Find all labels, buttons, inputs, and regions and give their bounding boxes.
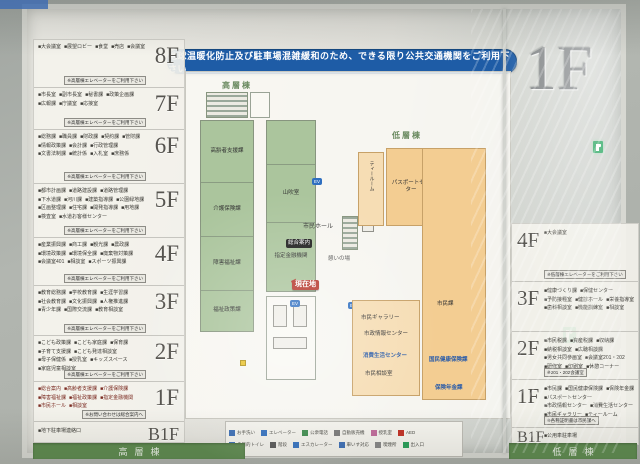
department-label: ■農政課 (111, 242, 129, 250)
floor-row-2f: 2F ■市民税課■資産税課■収納課■納税相談室■広聴相談課■男女共同参画室■会議… (512, 332, 638, 380)
department-label: ■開発指導課 (90, 205, 118, 213)
legend-row-1: お手洗いエレベーター公衆電話自動販売機授乳室AED (229, 430, 459, 436)
floor-number: 1F (155, 386, 179, 409)
legend-icon (371, 430, 377, 436)
floor-number: 2F (155, 340, 179, 363)
floor-row-4f: 4F ■大会議室 ※低層棟エレベーターをご利用下さい (512, 224, 638, 282)
department-label: ■市長室 (38, 92, 56, 100)
utility-room (250, 92, 270, 118)
department-label: ■保健センター (580, 288, 613, 296)
department-label: ■公用車駐車場 (544, 433, 577, 441)
lowrise-annex-block: 市民ギャラリー 市政情報センター 消費生活センター 市民相談室 (352, 300, 420, 396)
department-label: ■こども発達相談室 (74, 349, 117, 357)
department-label: ■機能訓練室 (575, 305, 603, 313)
floor-note: ※各種証明書は市民課へ (544, 416, 599, 425)
department-label: ■売店 (111, 44, 124, 52)
legend-icon (375, 442, 381, 448)
legend-label: 自動販売機 (342, 430, 365, 436)
floor-number: 8F (155, 44, 179, 67)
department-label: ■学校教育課 (69, 290, 97, 298)
department-label: ■道路建設課 (69, 188, 97, 196)
elevator-badge: EV (290, 300, 300, 307)
floor-note: ※高層棟エレベーターをご利用下さい (64, 324, 146, 333)
department-label: ■栄養指導室 (606, 297, 634, 305)
department-label: ■財政課 (80, 134, 98, 142)
department-label: ■広報課 (38, 101, 56, 109)
floor-note: ※高層棟エレベーターをご利用下さい (64, 226, 146, 235)
department-label: ■保育課 (110, 340, 128, 348)
floor-note: ※201・202会議室 (544, 368, 587, 377)
legend-item: 授乳室 (371, 430, 393, 436)
department-label: ■高齢者支援課 (64, 386, 97, 394)
legend-icon (398, 430, 404, 436)
department-label: ■人権推進課 (100, 299, 128, 307)
department-label: ■住宅課 (69, 205, 87, 213)
highrise-wing-bar: 高層棟 (33, 443, 245, 459)
department-label: ■国際交流課 (64, 307, 92, 315)
glass-reflection (0, 0, 48, 9)
department-label: ■総合案内 (38, 386, 61, 394)
floor-note: ※高層棟エレベーターをご利用下さい (64, 118, 146, 127)
department-label: ■建築指導課 (85, 197, 113, 205)
legend-label: 出入口 (411, 442, 425, 448)
highrise-floor-list: ■大会議室■展望ロビー■食堂■売店■会議室 8F ※高層棟エレベーターをご利用下… (33, 39, 185, 443)
current-location-badge: 現在地 (292, 280, 319, 290)
legend-item: 喫煙所 (375, 442, 397, 448)
department-label: ■福祉政策課 (69, 395, 97, 403)
floor-note: ※低層棟エレベーターをご利用下さい (544, 270, 626, 279)
department-label: ■市政情報センター (544, 403, 587, 411)
department-label: ■納税相談室 (544, 347, 572, 355)
department-label: ■相談室 (606, 305, 624, 313)
room-label: 福祉政策課 (213, 307, 241, 314)
department-label: ■こども政策課 (38, 340, 71, 348)
department-label: ■食堂 (95, 44, 108, 52)
department-label: ■こども家庭課 (74, 340, 107, 348)
department-label: ■統計係 (69, 151, 87, 159)
stairs-block (206, 92, 248, 118)
floor-number: 1F (517, 386, 539, 407)
department-label: ■パスポートセンター (544, 395, 592, 403)
floor-number: 2F (517, 338, 539, 359)
highrise-room-block-b: 山吹室 指定金融機関 (266, 120, 316, 292)
department-label: ■管財課 (122, 134, 140, 142)
department-label: ■職員課 (59, 134, 77, 142)
floor-note: ※高層棟エレベーターをご利用下さい (64, 76, 146, 85)
department-label: ■大会議室 (38, 44, 61, 52)
department-label: ■応接室 (80, 101, 98, 109)
room-label: 市民ギャラリー (361, 315, 400, 322)
department-label: ■下水道課 (38, 197, 61, 205)
floor-number: 4F (155, 242, 179, 265)
department-label: ■子育て支援課 (38, 349, 71, 357)
room-label: 山吹室 (283, 190, 300, 197)
legend-item: エスカレーター (293, 442, 333, 448)
department-label: ■会計課 (69, 143, 87, 151)
floor-number: B1F (148, 425, 179, 443)
department-label: ■河川課 (64, 197, 82, 205)
map-lowrise-title: 低層棟 (392, 130, 422, 141)
floor-number: 7F (155, 92, 179, 115)
tearoom: ティールーム (358, 152, 384, 226)
floor-row-4f: ■産業振興課■商工課■観光課■農政課■環境政策課■環境保全課■廃棄物対策課■会議… (34, 238, 184, 286)
department-label: ■スポーツ振興課 (88, 259, 126, 267)
lowrise-floor-list: 4F ■大会議室 ※低層棟エレベーターをご利用下さい 3F ■健康づくり課■保健… (511, 223, 639, 445)
lowrise-wing-bar: 低層棟 (509, 443, 637, 459)
emergency-exit-sign (593, 141, 603, 153)
department-label: ■大会議室 (544, 230, 567, 238)
rest-area-label: 憩いの場 (328, 256, 350, 263)
department-label: ■母子保健係 (38, 357, 66, 365)
department-label: ■保険年金課 (606, 386, 634, 394)
department-label: ■会議室401 (38, 259, 64, 267)
floor-row-3f: 3F ■健康づくり課■保健センター■予防接種室■健診ホール■栄養指導室■歯科相談… (512, 282, 638, 332)
department-label: ■生涯学習課 (100, 290, 128, 298)
floor-row-3f: ■教育総務課■学校教育課■生涯学習課■社会教育課■文化振興課■人権推進課■青少年… (34, 286, 184, 336)
department-label: ■広聴相談課 (575, 347, 603, 355)
floor-row-7f: ■市長室■副市長室■秘書課■政策企画課■広報課■庁議室■応接室 7F ※高層棟エ… (34, 88, 184, 130)
room-label: 国民健康保険課 (429, 357, 468, 364)
department-label: ■環境政策課 (38, 251, 66, 259)
department-label: ■庁議室 (59, 101, 77, 109)
information-badge: 総合案内 (286, 239, 312, 248)
floor-map-1f: 高層棟 低層棟 高齢者支援課 介護保険課 障害福祉課 福祉政策課 山吹室 指定金… (185, 71, 511, 419)
department-label: ■予防接種室 (544, 297, 572, 305)
legend-label: 授乳室 (379, 430, 393, 436)
floor-note: ※高層棟エレベーターをご利用下さい (64, 172, 146, 181)
legend-icon (302, 430, 308, 436)
legend-label: お手洗い (237, 430, 255, 436)
lowrise-main-block: 市民課 国民健康保険課 保険年金課 (422, 148, 486, 400)
department-label: ■収納課 (596, 338, 614, 346)
department-label: ■環境保全課 (69, 251, 97, 259)
department-label: ■休憩コーナー (586, 364, 619, 372)
department-label: ■介護保険課 (100, 386, 128, 394)
floor-row-b1f: ■地下駐車場連絡口 B1F (34, 422, 184, 444)
department-label: ■資産税課 (570, 338, 593, 346)
room-label: 高齢者支援課 (210, 148, 243, 155)
department-label: ■キッズスペース (90, 357, 127, 365)
department-label: ■公園緑地課 (116, 197, 144, 205)
department-label: ■総務課 (38, 134, 56, 142)
floor-number: 4F (517, 230, 539, 251)
department-label: ■行政管理課 (90, 143, 118, 151)
department-label: ■廃棄物対策課 (100, 251, 133, 259)
department-label: ■市民課 (544, 386, 562, 394)
legend-icon (334, 430, 340, 436)
legend-item: お手洗い (229, 430, 255, 436)
floor-row-2f: ■こども政策課■こども家庭課■保育課■子育て支援課■こども発達相談室■母子保健係… (34, 336, 184, 382)
room-label: 市政情報センター (359, 331, 413, 338)
etched-floor-number: 1F (525, 31, 593, 105)
department-label: ■消費生活センター (590, 403, 633, 411)
department-label: ■展望ロビー (64, 44, 92, 52)
legend-row-2: 多目的トイレ階段エスカレーター車いす対応喫煙所出入口 (229, 442, 459, 448)
department-label: ■契約課 (101, 134, 119, 142)
department-label: ■地下駐車場連絡口 (38, 428, 81, 436)
legend-item: 出入口 (403, 442, 425, 448)
department-label: ■健康づくり課 (544, 288, 577, 296)
legend-label: AED (406, 430, 415, 435)
glass-frame-divider (503, 9, 506, 453)
elevator-marker (240, 360, 246, 366)
department-label: ■情報政策課 (38, 143, 66, 151)
department-label: ■授乳室 (69, 357, 87, 365)
legend-icon (270, 442, 276, 448)
elevator-badge: EV (312, 178, 322, 185)
floor-number: 3F (517, 288, 539, 309)
counter-room (266, 296, 316, 380)
legend-item: 公衆電話 (302, 430, 328, 436)
floor-row-5f: ■都市計画課■道路建設課■道路管理課■下水道課■河川課■建築指導課■公園緑地課■… (34, 184, 184, 238)
floor-row-1f: 1F ■市民課■国民健康保険課■保険年金課■パスポートセンター■市政情報センター… (512, 380, 638, 428)
floor-row-1f: ■総合案内■高齢者支援課■介護保険課■障害福祉課■福祉政策課■指定金融機関■市民… (34, 382, 184, 422)
floor-number: 3F (155, 290, 179, 313)
department-label: ■青少年課 (38, 307, 61, 315)
legend-icon (293, 442, 299, 448)
map-highrise-title: 高層棟 (222, 80, 252, 91)
department-label: ■男女共同参画室 (544, 355, 582, 363)
department-label: ■文書法制課 (38, 151, 66, 159)
department-label: ■市民税課 (544, 338, 567, 346)
department-label: ■庶務係 (111, 151, 129, 159)
legend-label: 車いす対応 (347, 442, 370, 448)
department-label: ■歯科相談室 (544, 305, 572, 313)
department-label: ■入札室 (90, 151, 108, 159)
department-label: ■会議室201・202 (585, 355, 625, 363)
room-label: 介護保険課 (213, 206, 241, 213)
legend-item: エレベーター (261, 430, 296, 436)
floor-row-8f: ■大会議室■展望ロビー■食堂■売店■会議室 8F ※高層棟エレベーターをご利用下… (34, 40, 184, 88)
department-label: ■文化振興課 (69, 299, 97, 307)
department-label: ■用地課 (121, 205, 139, 213)
legend-item: 自動販売機 (334, 430, 365, 436)
legend-label: エスカレーター (301, 442, 333, 448)
department-label: ■国民健康保険課 (565, 386, 603, 394)
legend-label: 階段 (278, 442, 287, 448)
legend-item: 階段 (270, 442, 287, 448)
department-label: ■区画整理課 (38, 205, 66, 213)
floor-note: ※高層棟エレベーターをご利用下さい (64, 274, 146, 283)
legend-icon (339, 442, 345, 448)
room-label: ティールーム (368, 161, 375, 191)
stairs-block (342, 216, 358, 250)
legend-item: 車いす対応 (339, 442, 370, 448)
room-label: 消費生活センター (363, 353, 407, 360)
legend-label: 喫煙所 (383, 442, 397, 448)
legend-label: 公衆電話 (310, 430, 328, 436)
legend-item: AED (398, 430, 415, 436)
department-label: ■検査室 (38, 214, 56, 222)
room-label: 保険年金課 (435, 385, 463, 392)
floor-note: ※お問い合わせは総合案内へ (82, 410, 146, 419)
department-label: ■道路管理課 (100, 188, 128, 196)
hall-label: 市民ホール (286, 224, 350, 232)
department-label: ■障害福祉課 (38, 395, 66, 403)
room-label: 市民課 (437, 301, 454, 308)
legend-icon (403, 442, 409, 448)
legend-icon (261, 430, 267, 436)
department-label: ■副市長室 (59, 92, 82, 100)
department-label: ■教育総務課 (38, 290, 66, 298)
department-label: ■産業振興課 (38, 242, 66, 250)
department-label: ■教育相談室 (95, 307, 123, 315)
floor-number: 6F (155, 134, 179, 157)
floor-note: ※高層棟エレベーターをご利用下さい (64, 370, 146, 379)
highrise-room-block-a: 高齢者支援課 介護保険課 障害福祉課 福祉政策課 (200, 120, 254, 332)
legend-label: エレベーター (269, 430, 296, 436)
department-label: ■社会教育課 (38, 299, 66, 307)
legend-icon (229, 430, 235, 436)
department-label: ■市民ホール (38, 403, 66, 411)
map-legend: お手洗いエレベーター公衆電話自動販売機授乳室AED 多目的トイレ階段エスカレータ… (225, 421, 463, 457)
department-label: ■観光課 (90, 242, 108, 250)
floor-row-6f: ■総務課■職員課■財政課■契約課■管財課■情報政策課■会計課■行政管理課■文書法… (34, 130, 184, 184)
room-label: 市民相談室 (365, 371, 393, 378)
department-label: ■商工課 (69, 242, 87, 250)
department-label: ■政策企画課 (106, 92, 134, 100)
department-label: ■健診ホール (575, 297, 603, 305)
room-label: 指定金融機関 (274, 253, 307, 260)
directory-display-case: 地球温暖化防止及び駐車場混雑緩和のため、できる限り公共交通機関をご利用下さい ■… (22, 4, 626, 458)
department-label: ■水道お客様センター (59, 214, 107, 222)
department-label: ■都市計画課 (38, 188, 66, 196)
department-label: ■相談室 (67, 259, 85, 267)
department-label: ■指定金融機関 (100, 395, 133, 403)
room-label: 障害福祉課 (213, 260, 241, 267)
department-label: ■会議室 (127, 44, 145, 52)
department-label: ■秘書課 (85, 92, 103, 100)
floor-number: 5F (155, 188, 179, 211)
